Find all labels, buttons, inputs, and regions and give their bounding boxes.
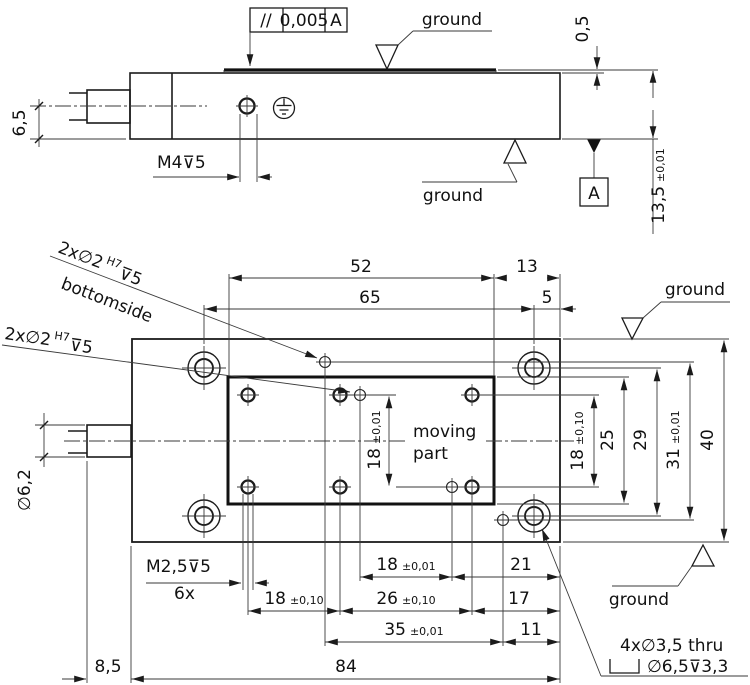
dim-26-tol: ±0,10 (402, 594, 436, 607)
svg-text:5: 5 (542, 288, 553, 308)
svg-text:21: 21 (510, 555, 532, 575)
svg-text:65: 65 (359, 288, 381, 308)
ground-triangle-icon (504, 140, 526, 163)
svg-text:A: A (588, 184, 600, 204)
ground-triangle-icon (622, 318, 643, 339)
mounting-line2: ∅6,5⊽3,3 (647, 657, 728, 677)
dim-8-5-label: 8,5 (94, 657, 121, 677)
dim-31-label: 31 (664, 448, 684, 470)
dim-row-18-21: 18±0,01 21 (360, 555, 560, 577)
tapped-hole (461, 384, 483, 406)
dim-0-5: 0,5 (498, 15, 658, 139)
parallelism-frame: // 0,005 A (250, 8, 347, 66)
svg-text:ground: ground (665, 280, 725, 300)
dim-m4: M4⊽5 (153, 114, 272, 182)
dim-18v-label: 18 (365, 448, 385, 470)
svg-text:∅6,5⊽3,3: ∅6,5⊽3,3 (647, 657, 728, 677)
tapped-thread-label: M2,5⊽5 (146, 557, 211, 577)
mounting-hole (512, 494, 556, 538)
bottom-extension-lines (87, 371, 560, 683)
parallelism-datum: A (330, 11, 342, 31)
svg-text:25: 25 (598, 429, 618, 451)
dim-18b-tol: ±0,10 (290, 594, 324, 607)
datum-a: A (580, 139, 608, 206)
dowel-hole (443, 478, 461, 496)
dim-18r-tol: ±0,10 (573, 411, 586, 445)
dim-21-label: 21 (510, 555, 532, 575)
svg-text:M2,5⊽5: M2,5⊽5 (146, 557, 211, 577)
dim-row-35-11: 35±0,01 11 (325, 620, 560, 642)
dim-18h-label: 18 (376, 555, 398, 575)
dim-18v-tol: ±0,01 (370, 410, 383, 444)
svg-text:part: part (413, 444, 448, 464)
dim-0-5-label: 0,5 (573, 15, 593, 42)
bottom-view: moving part 52 13 65 5 (2, 236, 748, 683)
dim-25-label: 25 (598, 429, 618, 451)
moving-part-label-1: moving (413, 422, 476, 442)
ground-triangle-icon (692, 545, 714, 566)
svg-text:ground: ground (423, 186, 483, 206)
dowel-hole (494, 511, 512, 529)
svg-text://: // (260, 11, 272, 31)
dowel-callout-topside: 2x∅2H7⊽5 (2, 322, 350, 392)
svg-text:84: 84 (335, 657, 357, 677)
svg-text:18±0,01: 18±0,01 (365, 410, 385, 469)
svg-text:ground: ground (422, 10, 482, 30)
dim-6-5-label: 6,5 (10, 109, 30, 136)
dim-18h-tol: ±0,01 (402, 560, 436, 573)
dim-row-18-26-17: 18±0,10 26±0,10 17 (248, 589, 560, 611)
ground-triangle-icon (376, 45, 398, 69)
ground-label: ground (665, 280, 725, 300)
ground-label-bottom: ground (422, 140, 526, 206)
dim-17-label: 17 (508, 589, 530, 609)
tapped-hole (329, 384, 351, 406)
svg-text:17: 17 (508, 589, 530, 609)
parallelism-symbol: // (260, 11, 272, 31)
parallelism-value: 0,005 (280, 11, 329, 31)
svg-text:11: 11 (520, 620, 542, 640)
m4-hole (236, 95, 258, 117)
dim-29: 29 (631, 370, 657, 515)
svg-text:M4⊽5: M4⊽5 (157, 153, 206, 173)
svg-text:35±0,01: 35±0,01 (384, 620, 443, 640)
svg-text:A: A (330, 11, 342, 31)
dim-65-label: 65 (359, 288, 381, 308)
tapped-hole (461, 476, 483, 498)
svg-text:moving: moving (413, 422, 476, 442)
counterbore-icon (610, 659, 639, 673)
mounting-line1: 4x∅3,5 thru (620, 636, 723, 656)
earth-ground-icon (274, 98, 295, 119)
datum-label: A (588, 184, 600, 204)
dim-13-label: 13 (516, 257, 538, 277)
technical-drawing-page: 6,5 M4⊽5 // 0,005 A ground (0, 0, 750, 685)
dim-29-label: 29 (631, 429, 651, 451)
dim-13-5-label: 13,5 (649, 186, 669, 224)
dim-26-label: 26 (376, 589, 398, 609)
svg-text:13,5±0,01: 13,5±0,01 (649, 148, 669, 224)
svg-text:2x∅2H7⊽5: 2x∅2H7⊽5 (3, 322, 95, 358)
svg-text:6,5: 6,5 (10, 109, 30, 136)
dim-13-5-tol: ±0,01 (654, 148, 667, 182)
dowel-hole (351, 386, 369, 404)
mounting-hole (182, 346, 226, 390)
tapped-hole (237, 476, 259, 498)
dowel-hole (316, 353, 334, 371)
mounting-hole (512, 346, 556, 390)
svg-text:0,005: 0,005 (280, 11, 329, 31)
svg-text:52: 52 (350, 257, 372, 277)
svg-text:6x: 6x (174, 584, 195, 604)
dim-40-label: 40 (698, 429, 718, 451)
dim-row-65-5: 65 5 (204, 288, 576, 344)
svg-text:∅6,2: ∅6,2 (15, 469, 35, 511)
tapped-hole-callout: M2,5⊽5 6x (146, 557, 269, 604)
svg-text:29: 29 (631, 429, 651, 451)
dim-35-tol: ±0,01 (410, 625, 444, 638)
svg-text:13: 13 (516, 257, 538, 277)
mounting-holes (182, 346, 556, 538)
ground-label: ground (422, 10, 482, 30)
svg-text:4x∅3,5 thru: 4x∅3,5 thru (620, 636, 723, 656)
tapped-hole (329, 476, 351, 498)
dim-6-2-label: ∅6,2 (15, 469, 35, 511)
svg-text:18±0,10: 18±0,10 (264, 589, 323, 609)
dim-84-label: 84 (335, 657, 357, 677)
dim-35-label: 35 (384, 620, 406, 640)
moving-part-label-2: part (413, 444, 448, 464)
dim-m4-label: M4⊽5 (157, 153, 206, 173)
linear-stage-drawing: 6,5 M4⊽5 // 0,005 A ground (0, 0, 750, 685)
dim-18r-label: 18 (568, 449, 588, 471)
dim-5-label: 5 (542, 288, 553, 308)
ground-label-right-top: ground (622, 280, 730, 339)
dim-52-label: 52 (350, 257, 372, 277)
dim-18b-label: 18 (264, 589, 286, 609)
dim-row-85-84: 8,5 84 (62, 657, 560, 679)
dim-25: 25 (598, 379, 624, 503)
dim-row-52-13: 52 13 (229, 257, 560, 376)
dim-31: 31±0,01 (664, 364, 690, 519)
ground-label-top: ground (376, 10, 492, 69)
datum-triangle-icon (587, 139, 601, 153)
cable-connector-side (87, 90, 130, 123)
svg-text:26±0,10: 26±0,10 (376, 589, 435, 609)
dim-40: 40 (698, 341, 724, 541)
tapped-hole (237, 384, 259, 406)
svg-text:0,5: 0,5 (573, 15, 593, 42)
ground-label: ground (423, 186, 483, 206)
svg-text:40: 40 (698, 429, 718, 451)
svg-text:31±0,01: 31±0,01 (664, 410, 684, 469)
svg-text:18±0,01: 18±0,01 (376, 555, 435, 575)
tapped-count-label: 6x (174, 584, 195, 604)
ground-label-right-bottom: ground (609, 545, 714, 610)
dim-13-5: 13,5±0,01 (649, 71, 669, 234)
dim-31-tol: ±0,01 (669, 410, 682, 444)
dowel-ts-depth: ⊽5 (68, 335, 94, 358)
svg-text:ground: ground (609, 590, 669, 610)
svg-text:8,5: 8,5 (94, 657, 121, 677)
dim-11-label: 11 (520, 620, 542, 640)
ground-label: ground (609, 590, 669, 610)
dowel-ts-fit: H7 (54, 329, 71, 344)
dim-6-2: ∅6,2 (15, 413, 85, 511)
mounting-hole (182, 494, 226, 538)
top-view: 6,5 M4⊽5 // 0,005 A ground (10, 8, 669, 234)
